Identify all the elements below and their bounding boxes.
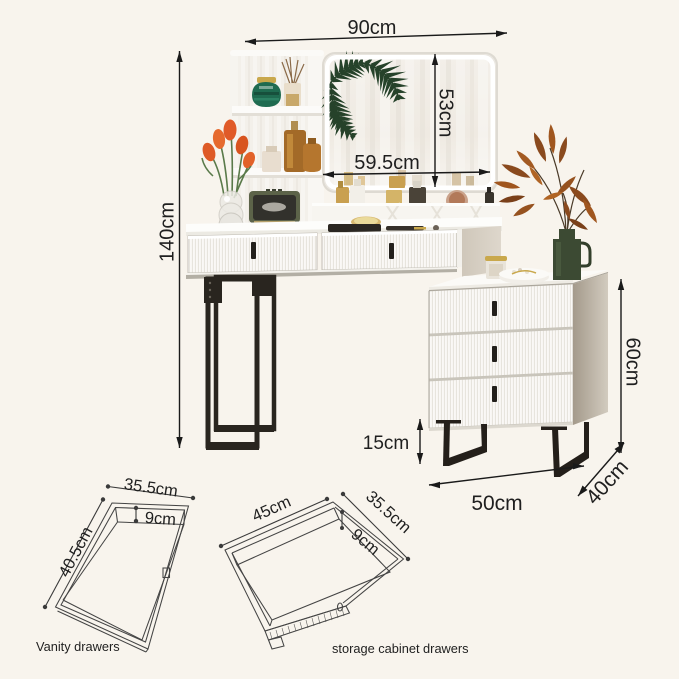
svg-text:9cm: 9cm <box>144 509 176 529</box>
svg-text:90cm: 90cm <box>348 17 397 39</box>
svg-text:15cm: 15cm <box>363 433 409 454</box>
svg-text:140cm: 140cm <box>156 202 178 262</box>
svg-text:60cm: 60cm <box>622 338 644 387</box>
svg-text:50cm: 50cm <box>471 492 522 515</box>
svg-text:53cm: 53cm <box>435 89 457 138</box>
svg-text:59.5cm: 59.5cm <box>354 152 420 174</box>
svg-text:storage cabinet drawers: storage cabinet drawers <box>332 641 469 656</box>
svg-text:Vanity drawers: Vanity drawers <box>36 639 120 654</box>
